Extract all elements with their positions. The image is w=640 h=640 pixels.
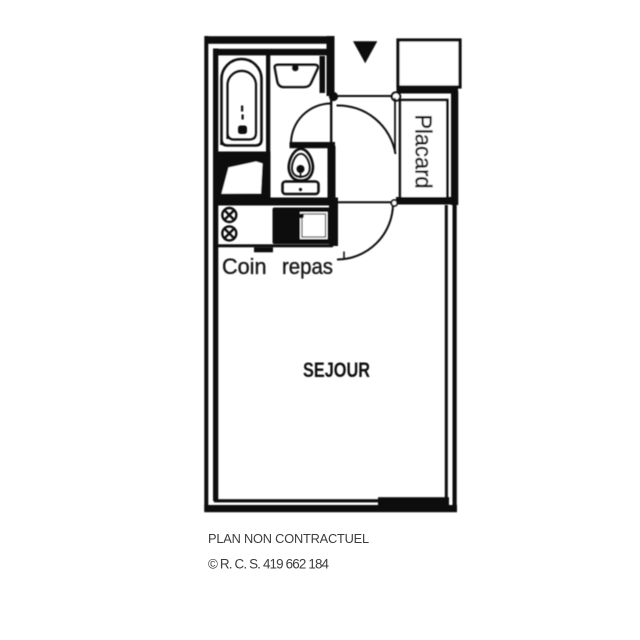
svg-text:SEJOUR: SEJOUR xyxy=(303,358,370,382)
svg-text:repas: repas xyxy=(282,254,333,279)
svg-text:Coin: Coin xyxy=(222,254,267,279)
svg-text:© R. C. S. 419 662 184: © R. C. S. 419 662 184 xyxy=(208,557,330,572)
svg-text:Placard: Placard xyxy=(411,115,437,189)
svg-text:PLAN NON CONTRACTUEL: PLAN NON CONTRACTUEL xyxy=(208,531,370,546)
